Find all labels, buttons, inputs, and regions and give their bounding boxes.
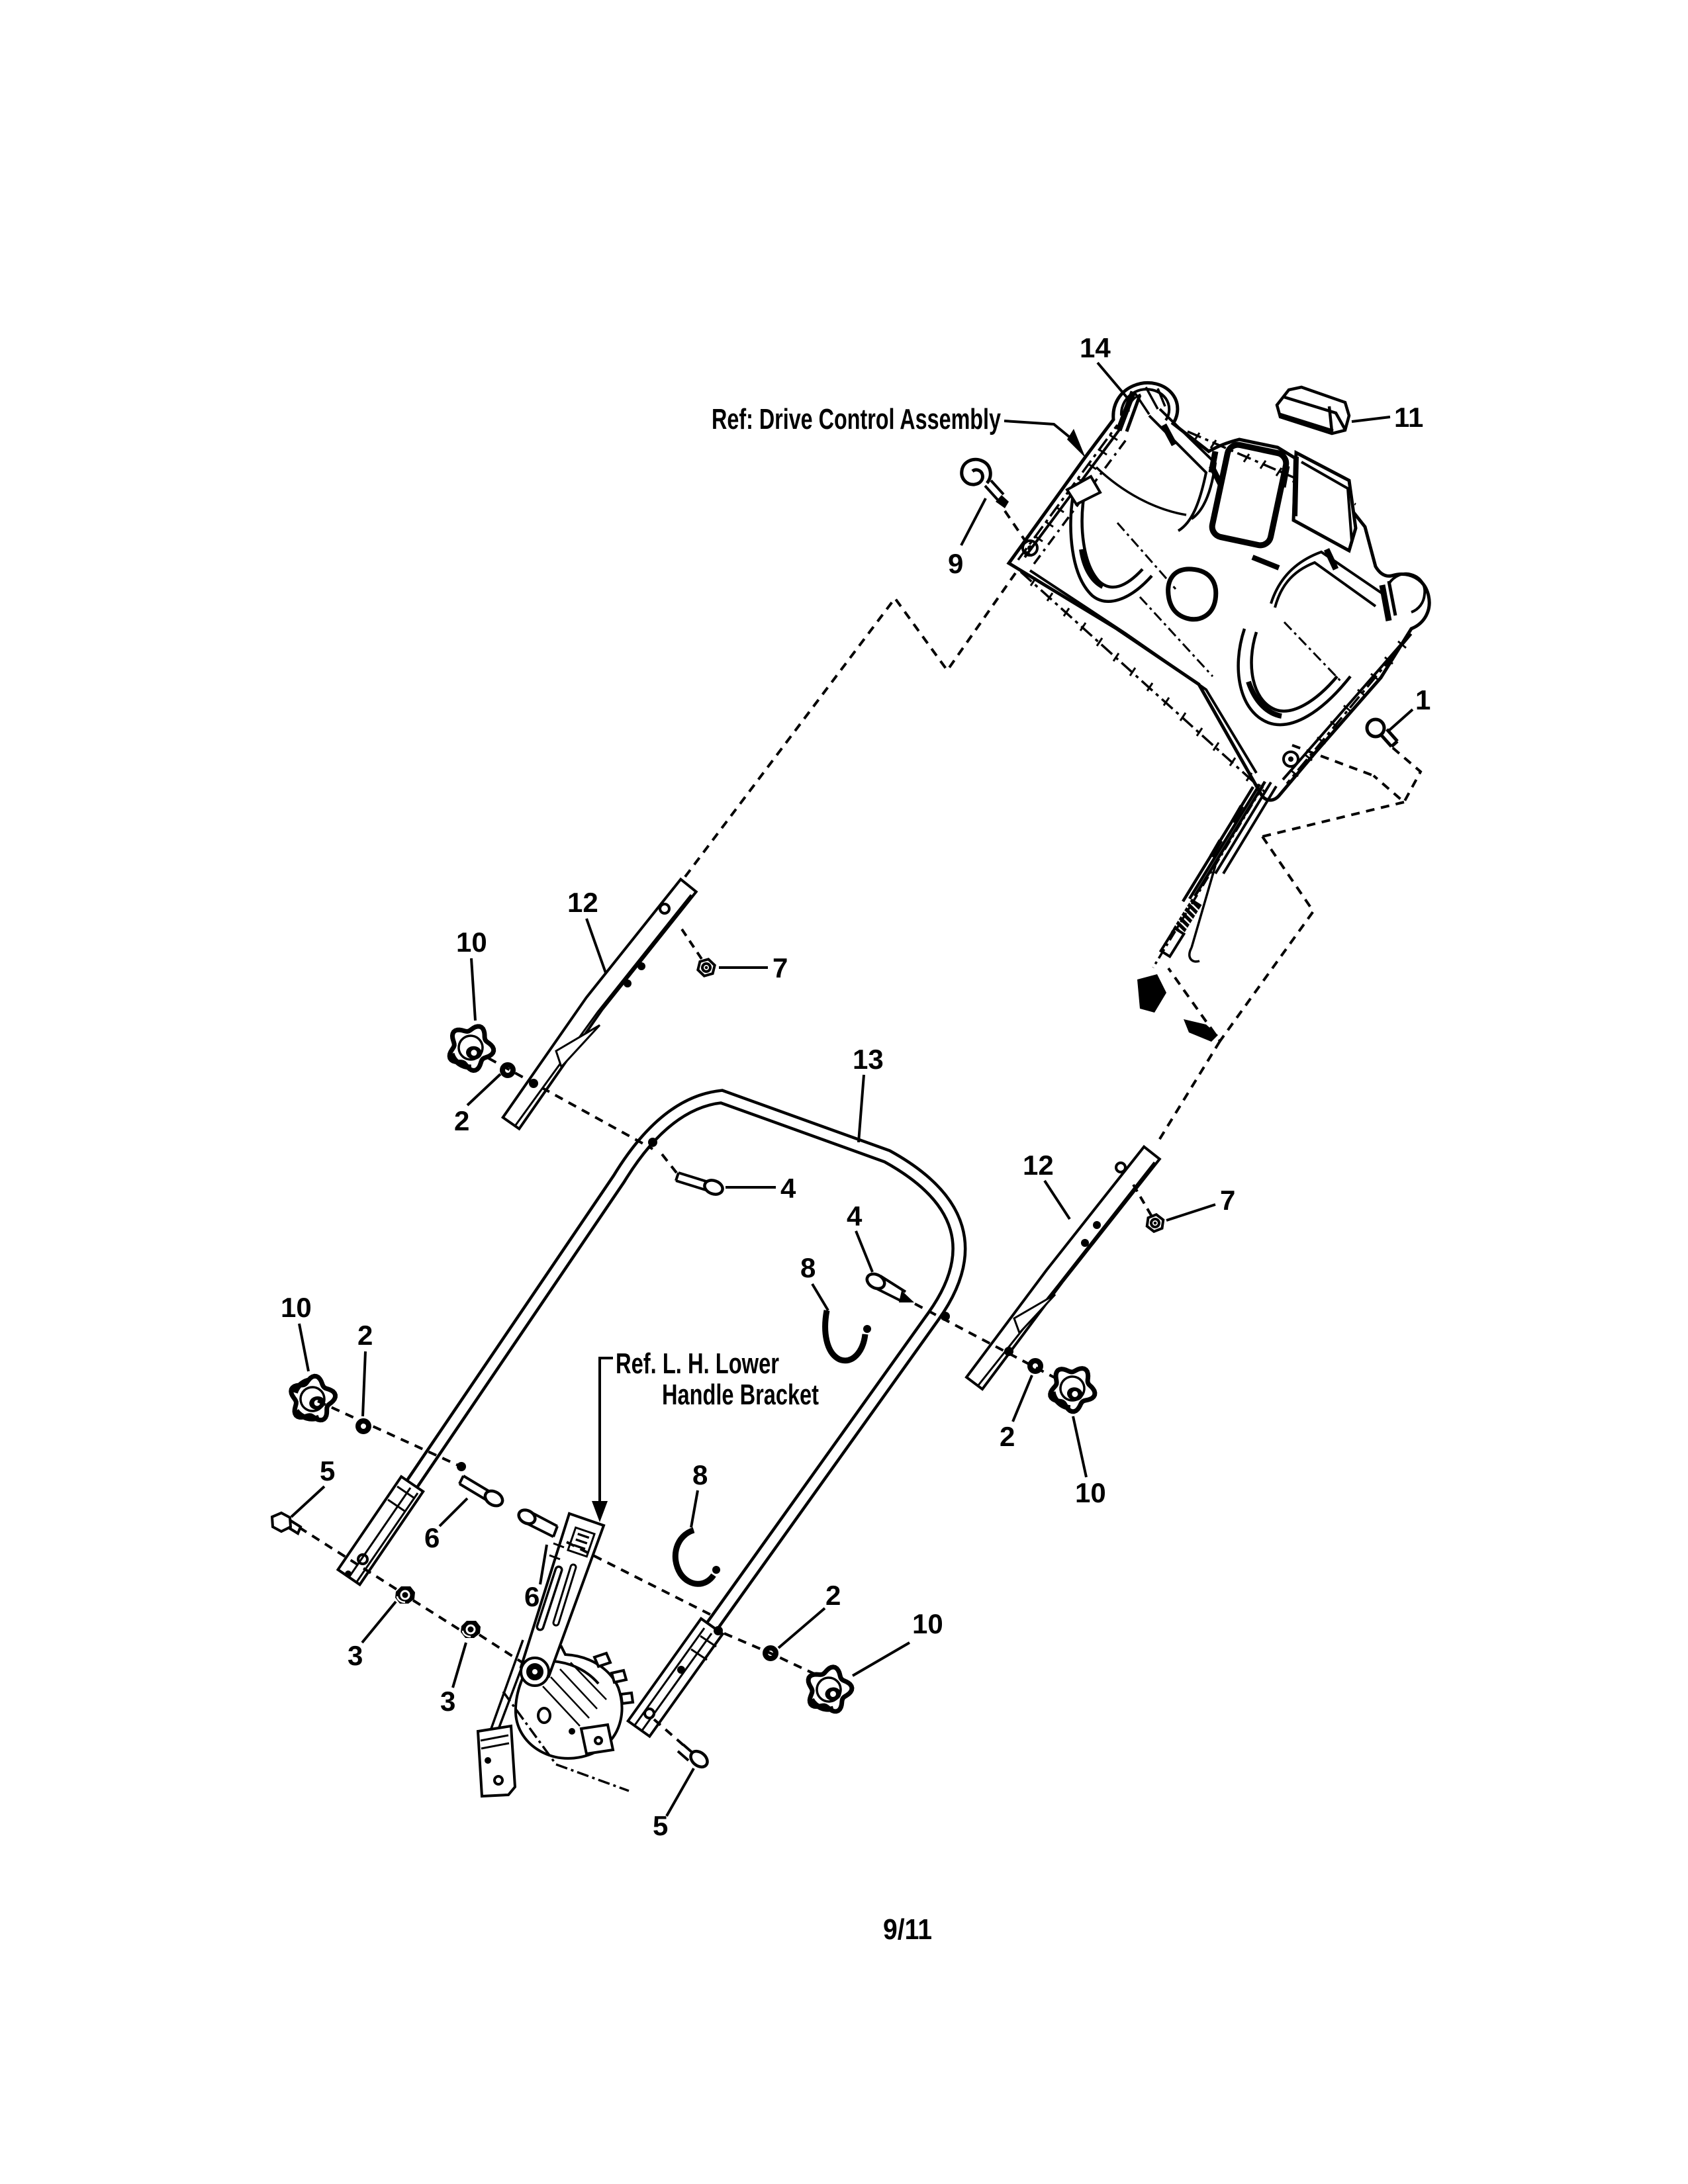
svg-text:7: 7 (773, 952, 788, 983)
svg-text:Handle Bracket: Handle Bracket (662, 1379, 819, 1411)
svg-text:6: 6 (524, 1581, 539, 1612)
svg-text:3: 3 (440, 1686, 455, 1717)
svg-text:9/11: 9/11 (883, 1913, 932, 1946)
svg-text:7: 7 (1220, 1185, 1235, 1216)
svg-text:12: 12 (1023, 1150, 1054, 1181)
svg-text:Ref. L. H. Lower: Ref. L. H. Lower (616, 1347, 779, 1380)
svg-text:6: 6 (424, 1522, 440, 1553)
svg-text:8: 8 (800, 1252, 816, 1283)
svg-text:10: 10 (281, 1292, 312, 1323)
svg-text:1: 1 (1415, 684, 1430, 715)
svg-text:13: 13 (853, 1044, 884, 1075)
svg-text:11: 11 (1394, 402, 1423, 433)
svg-text:3: 3 (348, 1640, 363, 1671)
svg-text:2: 2 (1000, 1421, 1015, 1452)
svg-text:5: 5 (320, 1455, 335, 1486)
svg-text:2: 2 (357, 1320, 373, 1351)
svg-text:2: 2 (825, 1580, 841, 1611)
svg-text:10: 10 (912, 1608, 943, 1639)
svg-text:9: 9 (948, 548, 963, 579)
svg-text:2: 2 (454, 1105, 469, 1136)
svg-text:4: 4 (847, 1201, 863, 1232)
svg-text:12: 12 (567, 887, 598, 918)
svg-text:4: 4 (780, 1173, 796, 1204)
svg-text:8: 8 (692, 1459, 708, 1490)
svg-text:10: 10 (456, 927, 487, 958)
svg-text:14: 14 (1080, 332, 1111, 363)
svg-text:Ref: Drive Control Assembly: Ref: Drive Control Assembly (712, 403, 1001, 435)
svg-text:10: 10 (1075, 1477, 1106, 1508)
